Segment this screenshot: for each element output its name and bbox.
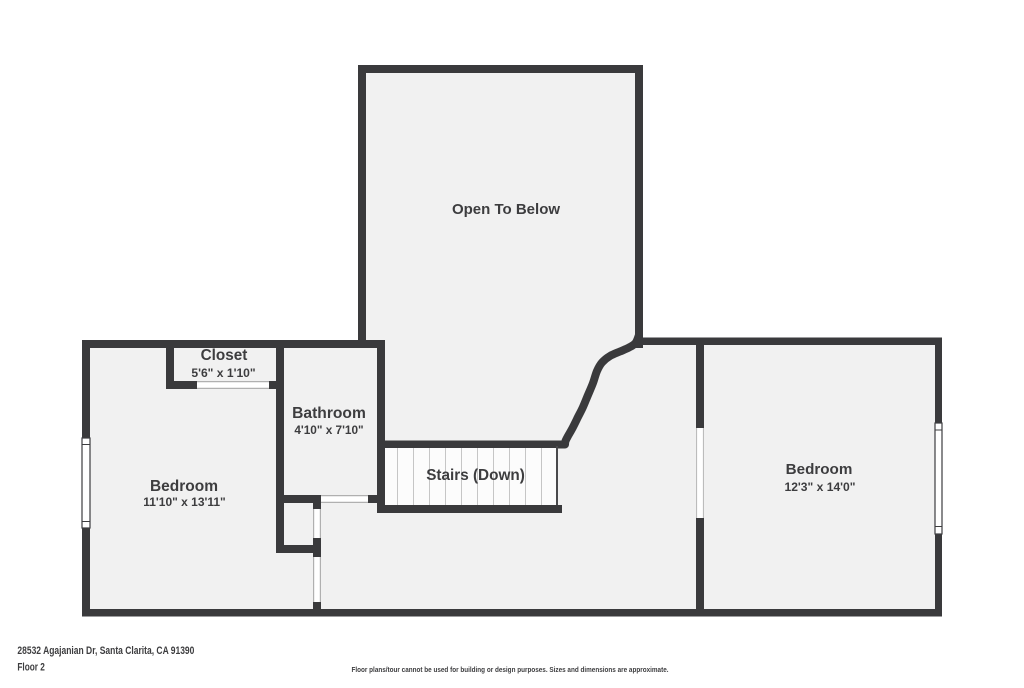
svg-text:11'10" x 13'11": 11'10" x 13'11"	[143, 495, 226, 509]
svg-text:Floor plans/tour cannot be use: Floor plans/tour cannot be used for buil…	[352, 667, 669, 674]
svg-text:Bathroom: Bathroom	[292, 405, 366, 422]
svg-text:Stairs (Down): Stairs (Down)	[426, 467, 525, 484]
svg-text:Open To Below: Open To Below	[452, 201, 560, 218]
svg-text:4'10" x 7'10": 4'10" x 7'10"	[294, 423, 363, 437]
svg-text:Bedroom: Bedroom	[786, 461, 853, 478]
svg-text:Closet: Closet	[201, 347, 248, 364]
svg-text:Bedroom: Bedroom	[150, 478, 218, 495]
svg-text:12'3" x 14'0": 12'3" x 14'0"	[784, 480, 855, 494]
svg-text:5'6" x 1'10": 5'6" x 1'10"	[191, 366, 255, 380]
svg-text:28532 Agajanian Dr, Santa Clar: 28532 Agajanian Dr, Santa Clarita, CA 91…	[17, 645, 194, 657]
svg-text:Floor 2: Floor 2	[17, 662, 45, 674]
